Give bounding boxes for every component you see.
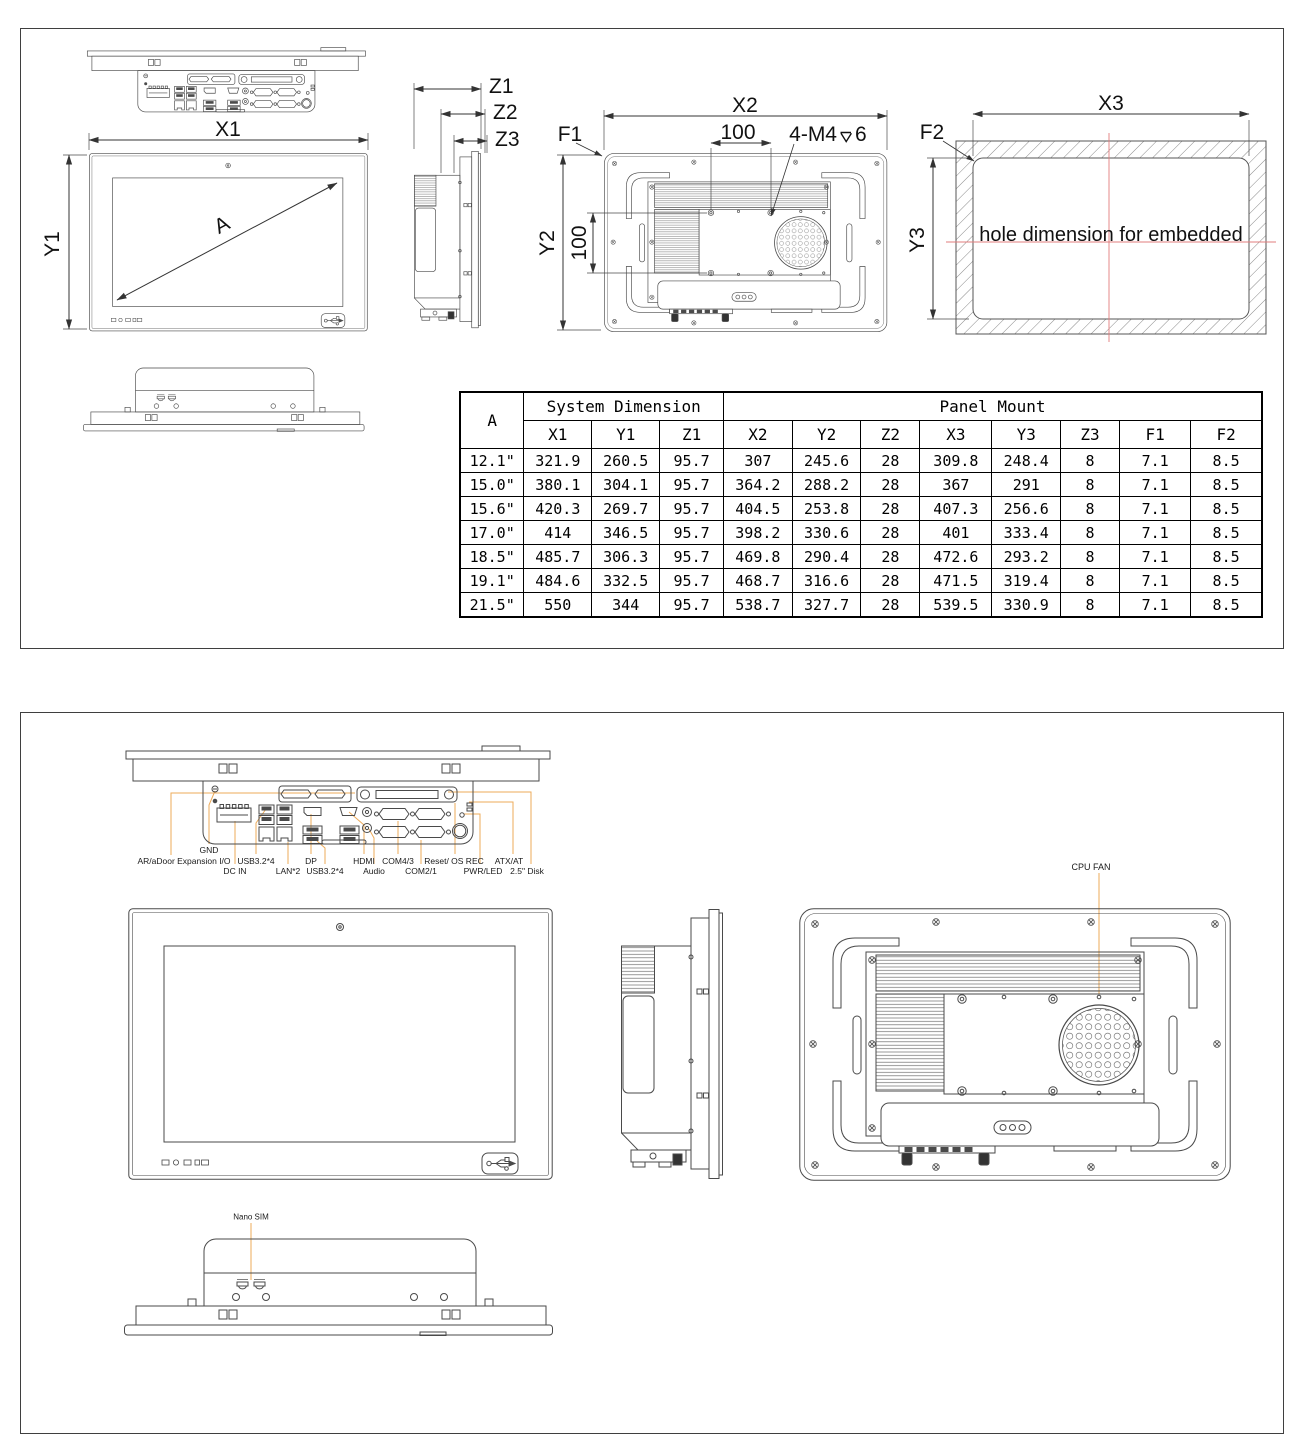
io-view-large (126, 746, 550, 844)
value-cell: 327.7 (792, 593, 861, 618)
value-cell: 539.5 (920, 593, 992, 618)
dimension-sheet: X1 Y1 A Z1 Z2 Z3 F1 X2 100 4-M4 6 Y2 100… (20, 28, 1284, 649)
value-cell: 95.7 (660, 569, 724, 593)
nano-sim-label: Nano SIM (233, 1213, 269, 1222)
value-cell: 330.6 (792, 521, 861, 545)
value-cell: 7.1 (1120, 521, 1191, 545)
dim-label-y2: Y2 (536, 230, 559, 256)
io-label-expansion: AR/aDoor Expansion I/O (137, 857, 230, 866)
value-cell: 398.2 (724, 521, 793, 545)
rear-view-small (605, 154, 887, 332)
table-row: 15.6"420.3269.795.7404.5253.828407.3256.… (460, 497, 1262, 521)
value-cell: 407.3 (920, 497, 992, 521)
col-header: Y2 (792, 421, 861, 449)
io-detail-sheet: GND AR/aDoor Expansion I/O USB3.2*4 DP H… (20, 712, 1284, 1434)
value-cell: 304.1 (592, 473, 660, 497)
col-header: F1 (1120, 421, 1191, 449)
col-header: X3 (920, 421, 992, 449)
thread-depth: 6 (855, 123, 867, 146)
value-cell: 95.7 (660, 497, 724, 521)
value-cell: 414 (524, 521, 592, 545)
dim-label-z3: Z3 (495, 128, 520, 151)
rear-view-large (800, 909, 1230, 1180)
value-cell: 288.2 (792, 473, 861, 497)
value-cell: 319.4 (992, 569, 1061, 593)
value-cell: 8 (1061, 497, 1120, 521)
value-cell: 28 (861, 545, 920, 569)
value-cell: 367 (920, 473, 992, 497)
dim-label-y3: Y3 (906, 227, 929, 253)
value-cell: 245.6 (792, 449, 861, 473)
size-cell: 18.5" (460, 545, 524, 569)
value-cell: 344 (592, 593, 660, 618)
size-cell: 12.1" (460, 449, 524, 473)
dim-label-z2: Z2 (493, 101, 518, 124)
table-corner-header: A (460, 392, 524, 449)
table-group-panel-mount: Panel Mount (724, 392, 1263, 421)
value-cell: 7.1 (1120, 497, 1191, 521)
value-cell: 28 (861, 593, 920, 618)
dim-label-z1: Z1 (489, 75, 514, 98)
col-header: Y1 (592, 421, 660, 449)
io-label-com21: COM2/1 (405, 867, 437, 876)
depth-symbol-icon (841, 133, 852, 142)
value-cell: 28 (861, 497, 920, 521)
io-label-lan: LAN*2 (276, 867, 301, 876)
top-view-small (83, 368, 364, 431)
col-header: X1 (524, 421, 592, 449)
dim-label-100v: 100 (568, 225, 591, 260)
size-cell: 15.0" (460, 473, 524, 497)
value-cell: 8.5 (1191, 521, 1262, 545)
value-cell: 8 (1061, 473, 1120, 497)
size-cell: 19.1" (460, 569, 524, 593)
value-cell: 7.1 (1120, 449, 1191, 473)
value-cell: 485.7 (524, 545, 592, 569)
io-label-dp: DP (305, 857, 317, 866)
value-cell: 248.4 (992, 449, 1061, 473)
value-cell: 8 (1061, 593, 1120, 618)
value-cell: 380.1 (524, 473, 592, 497)
size-cell: 15.6" (460, 497, 524, 521)
value-cell: 321.9 (524, 449, 592, 473)
value-cell: 95.7 (660, 521, 724, 545)
value-cell: 8 (1061, 569, 1120, 593)
io-label-usb-top: USB3.2*4 (237, 857, 274, 866)
value-cell: 333.4 (992, 521, 1061, 545)
diagonal-line-a (117, 183, 337, 300)
value-cell: 468.7 (724, 569, 793, 593)
side-view-small (414, 151, 480, 327)
side-view-large (622, 910, 723, 1179)
size-cell: 21.5" (460, 593, 524, 618)
front-view-large (129, 909, 552, 1179)
dim-label-x1: X1 (215, 118, 241, 141)
value-cell: 95.7 (660, 593, 724, 618)
value-cell: 95.7 (660, 473, 724, 497)
value-cell: 364.2 (724, 473, 793, 497)
value-cell: 8.5 (1191, 545, 1262, 569)
value-cell: 420.3 (524, 497, 592, 521)
value-cell: 8.5 (1191, 569, 1262, 593)
dim-label-f2: F2 (920, 121, 945, 144)
value-cell: 332.5 (592, 569, 660, 593)
io-label-disk: 2.5" Disk (510, 867, 544, 876)
value-cell: 95.7 (660, 545, 724, 569)
top-view-large (125, 1239, 553, 1336)
table-row: 18.5"485.7306.395.7469.8290.428472.6293.… (460, 545, 1262, 569)
io-label-pwrled: PWR/LED (464, 867, 503, 876)
value-cell: 469.8 (724, 545, 793, 569)
table-group-system-dimension: System Dimension (524, 392, 724, 421)
table-row: 17.0"414346.595.7398.2330.628401333.487.… (460, 521, 1262, 545)
value-cell: 538.7 (724, 593, 793, 618)
value-cell: 7.1 (1120, 593, 1191, 618)
diagonal-label-a: A (210, 212, 233, 239)
value-cell: 253.8 (792, 497, 861, 521)
value-cell: 309.8 (920, 449, 992, 473)
dim-label-x2: X2 (732, 94, 758, 117)
value-cell: 7.1 (1120, 473, 1191, 497)
value-cell: 330.9 (992, 593, 1061, 618)
value-cell: 8.5 (1191, 593, 1262, 618)
table-row: 21.5"55034495.7538.7327.728539.5330.987.… (460, 593, 1262, 618)
io-label-gnd: GND (200, 846, 219, 855)
dimension-table-body: 12.1"321.9260.595.7307245.628309.8248.48… (460, 449, 1262, 618)
io-view-small (87, 48, 365, 112)
value-cell: 28 (861, 521, 920, 545)
value-cell: 28 (861, 569, 920, 593)
value-cell: 316.6 (792, 569, 861, 593)
col-header: Z3 (1061, 421, 1120, 449)
io-label-hdmi: HDMI (353, 857, 375, 866)
thread-note: 4-M4 (789, 123, 837, 146)
value-cell: 8.5 (1191, 449, 1262, 473)
col-header: F2 (1191, 421, 1262, 449)
col-header: Z1 (660, 421, 724, 449)
col-header: Z2 (861, 421, 920, 449)
value-cell: 8.5 (1191, 473, 1262, 497)
value-cell: 256.6 (992, 497, 1061, 521)
col-header: Y3 (992, 421, 1061, 449)
value-cell: 8 (1061, 449, 1120, 473)
io-label-audio: Audio (363, 867, 385, 876)
io-label-com43: COM4/3 (382, 857, 414, 866)
table-row: 12.1"321.9260.595.7307245.628309.8248.48… (460, 449, 1262, 473)
value-cell: 291 (992, 473, 1061, 497)
dim-label-100h: 100 (720, 121, 755, 144)
value-cell: 28 (861, 449, 920, 473)
cpu-fan-label: CPU FAN (1071, 862, 1110, 872)
dim-label-y1: Y1 (41, 231, 64, 257)
io-detail-drawing (21, 713, 1280, 1430)
dim-label-x3: X3 (1098, 92, 1124, 115)
io-label-reset: Reset/ OS REC (424, 857, 484, 866)
front-view-small (90, 154, 368, 331)
io-label-dcin: DC IN (223, 867, 246, 876)
value-cell: 8 (1061, 521, 1120, 545)
value-cell: 293.2 (992, 545, 1061, 569)
value-cell: 260.5 (592, 449, 660, 473)
value-cell: 306.3 (592, 545, 660, 569)
hole-note: hole dimension for embedded (979, 224, 1243, 246)
value-cell: 290.4 (792, 545, 861, 569)
dim-label-f1: F1 (558, 123, 583, 146)
io-label-usb-bot: USB3.2*4 (306, 867, 343, 876)
value-cell: 7.1 (1120, 545, 1191, 569)
value-cell: 269.7 (592, 497, 660, 521)
value-cell: 95.7 (660, 449, 724, 473)
value-cell: 346.5 (592, 521, 660, 545)
value-cell: 8 (1061, 545, 1120, 569)
table-row: 19.1"484.6332.595.7468.7316.628471.5319.… (460, 569, 1262, 593)
value-cell: 401 (920, 521, 992, 545)
value-cell: 472.6 (920, 545, 992, 569)
value-cell: 7.1 (1120, 569, 1191, 593)
col-header: X2 (724, 421, 793, 449)
value-cell: 471.5 (920, 569, 992, 593)
table-row: 15.0"380.1304.195.7364.2288.22836729187.… (460, 473, 1262, 497)
value-cell: 404.5 (724, 497, 793, 521)
size-cell: 17.0" (460, 521, 524, 545)
value-cell: 484.6 (524, 569, 592, 593)
value-cell: 550 (524, 593, 592, 618)
value-cell: 307 (724, 449, 793, 473)
value-cell: 28 (861, 473, 920, 497)
value-cell: 8.5 (1191, 497, 1262, 521)
dimension-table: A System Dimension Panel Mount X1 Y1 Z1 … (459, 391, 1263, 611)
io-label-atx: ATX/AT (495, 857, 524, 866)
